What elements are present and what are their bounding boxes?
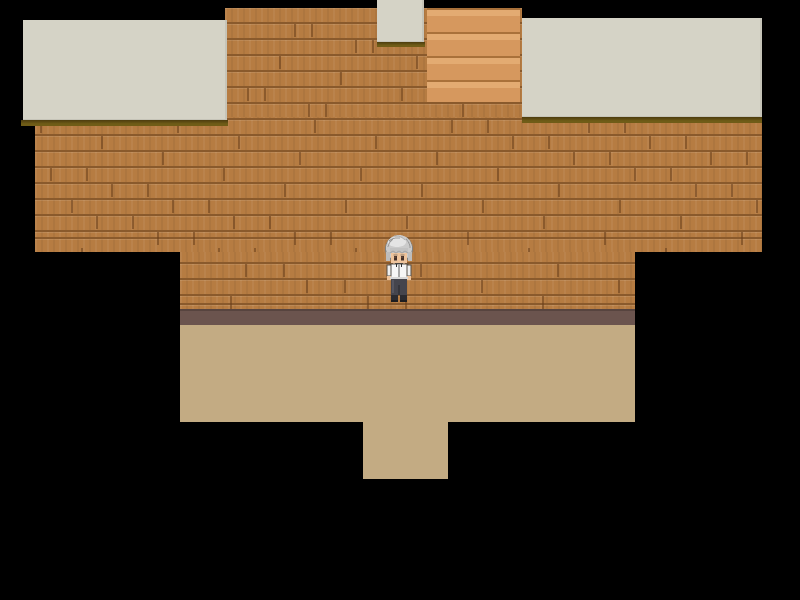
plank-seam bbox=[710, 152, 712, 165]
counter-left-shadow bbox=[21, 120, 228, 126]
plank-seam bbox=[367, 296, 369, 309]
plank-seam bbox=[372, 40, 374, 53]
plank-seam bbox=[299, 152, 301, 165]
plank-seam bbox=[101, 136, 103, 149]
plank-seam bbox=[467, 232, 469, 245]
plank-seam bbox=[462, 104, 464, 117]
plank-seam bbox=[96, 216, 98, 229]
counter-small-shadow bbox=[377, 42, 425, 47]
plank-seam bbox=[284, 184, 286, 197]
plank-seam bbox=[609, 152, 611, 165]
plank-seam bbox=[680, 216, 682, 229]
plank-seam bbox=[573, 152, 575, 165]
plank-seam bbox=[731, 184, 733, 197]
plank-seam bbox=[308, 104, 310, 117]
plank-seam bbox=[311, 24, 313, 37]
plank-seam bbox=[111, 184, 113, 197]
plank-seam bbox=[193, 232, 195, 245]
plank-seam bbox=[685, 136, 687, 149]
plank-seam bbox=[416, 56, 418, 69]
plank-seam bbox=[746, 152, 748, 165]
game-viewport[interactable] bbox=[0, 0, 800, 600]
wall-base-trim bbox=[180, 309, 635, 325]
counter-left bbox=[23, 20, 227, 120]
plank-seam bbox=[294, 24, 296, 37]
wall-upper bbox=[35, 117, 762, 252]
plank-seam bbox=[420, 264, 422, 277]
player-pants bbox=[391, 279, 407, 302]
plank-seam bbox=[406, 216, 408, 229]
plank-seam bbox=[481, 280, 483, 293]
plank-seam bbox=[557, 264, 559, 277]
player-sprite bbox=[384, 233, 414, 304]
plank-seam bbox=[756, 200, 758, 213]
plank-seam bbox=[162, 152, 164, 165]
plank-seam bbox=[451, 120, 453, 133]
plank-seam bbox=[375, 136, 377, 149]
plank-seam bbox=[86, 168, 88, 181]
plank-seam bbox=[238, 136, 240, 149]
plank-seam bbox=[548, 136, 550, 149]
plank-seam bbox=[264, 88, 266, 101]
counter-small bbox=[377, 0, 424, 42]
plank-seam bbox=[421, 184, 423, 197]
plank-seam bbox=[330, 232, 332, 245]
plank-seam bbox=[604, 232, 606, 245]
plank-seam bbox=[223, 168, 225, 181]
plank-seam bbox=[497, 168, 499, 181]
plank-seam bbox=[695, 184, 697, 197]
plank-seam bbox=[157, 232, 159, 245]
plank-seam bbox=[306, 280, 308, 293]
plank-seam bbox=[436, 152, 438, 165]
plank-seam bbox=[345, 200, 347, 213]
floor-main[interactable] bbox=[180, 325, 635, 422]
player-face bbox=[390, 248, 408, 264]
plank-seam bbox=[283, 264, 285, 277]
plank-seam bbox=[665, 248, 667, 252]
plank-seam bbox=[634, 168, 636, 181]
plank-seam bbox=[172, 200, 174, 213]
plank-seam bbox=[233, 216, 235, 229]
plank-seam bbox=[314, 120, 316, 133]
plank-seam bbox=[344, 280, 346, 293]
player-shirt bbox=[387, 263, 411, 280]
counter-right bbox=[522, 18, 762, 117]
counter-right-shadow bbox=[522, 117, 762, 123]
plank-seam bbox=[132, 216, 134, 229]
floor-doorway[interactable] bbox=[363, 422, 448, 479]
plank-seam bbox=[147, 184, 149, 197]
plank-seam bbox=[325, 104, 327, 117]
plank-seam bbox=[279, 56, 281, 69]
plank-seam bbox=[558, 184, 560, 197]
plank-seam bbox=[401, 88, 403, 101]
plank-seam bbox=[355, 40, 357, 53]
plank-seam bbox=[50, 168, 52, 181]
plank-seam bbox=[618, 280, 620, 293]
plank-seam bbox=[542, 296, 544, 309]
plank-seam bbox=[482, 200, 484, 213]
plank-seam bbox=[543, 216, 545, 229]
player-character[interactable] bbox=[384, 233, 414, 304]
plank-seam bbox=[71, 200, 73, 213]
plank-seam bbox=[81, 248, 83, 252]
plank-seam bbox=[208, 200, 210, 213]
plank-seam bbox=[649, 136, 651, 149]
plank-seam bbox=[670, 168, 672, 181]
plank-seam bbox=[269, 216, 271, 229]
plank-seam bbox=[619, 200, 621, 213]
plank-seam bbox=[245, 264, 247, 277]
plank-seam bbox=[487, 120, 489, 133]
plank-seam bbox=[340, 72, 342, 85]
plank-seam bbox=[247, 88, 249, 101]
plank-seam bbox=[360, 168, 362, 181]
staircase-tile[interactable] bbox=[427, 8, 520, 102]
plank-seam bbox=[230, 296, 232, 309]
plank-seam bbox=[294, 232, 296, 245]
plank-seam bbox=[741, 232, 743, 245]
plank-seam bbox=[512, 136, 514, 149]
